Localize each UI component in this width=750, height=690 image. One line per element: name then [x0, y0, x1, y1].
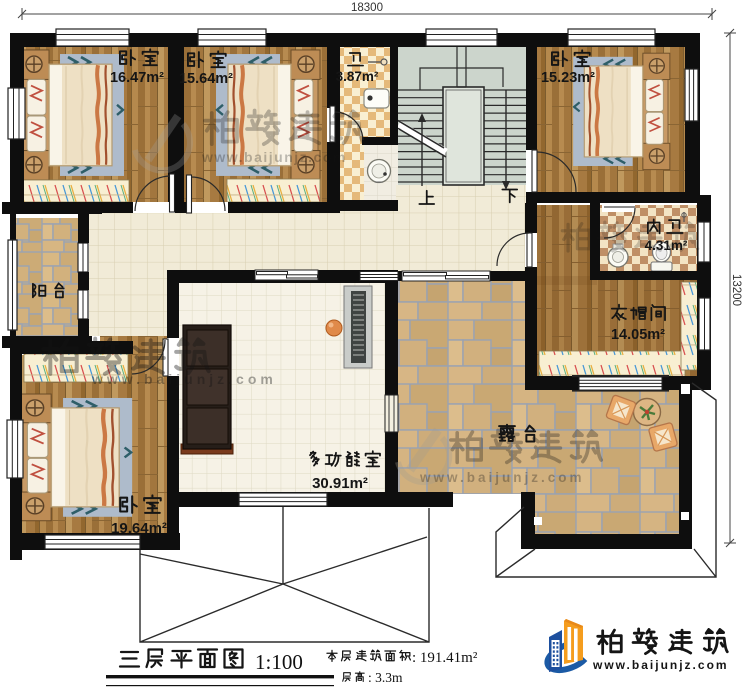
- svg-text:www.baijunjz.com: www.baijunjz.com: [419, 470, 585, 485]
- svg-text:15.64m²: 15.64m²: [179, 71, 233, 87]
- svg-text:1:100: 1:100: [255, 650, 303, 674]
- svg-text:18300: 18300: [351, 2, 383, 14]
- svg-text:www.baijunjz.com: www.baijunjz.com: [201, 149, 347, 165]
- svg-text:: 3.3m: : 3.3m: [368, 670, 403, 685]
- svg-text:15.23m²: 15.23m²: [541, 70, 595, 86]
- svg-text:13200: 13200: [730, 274, 742, 306]
- svg-text:www.baijunjz.com: www.baijunjz.com: [592, 658, 729, 672]
- svg-text:www.baijunjz.com: www.baijunjz.com: [91, 371, 277, 387]
- svg-text:30.91m²: 30.91m²: [312, 475, 368, 492]
- svg-text:14.05m²: 14.05m²: [611, 327, 665, 343]
- svg-text:: 191.41m²: : 191.41m²: [412, 650, 478, 666]
- svg-text:16.47m²: 16.47m²: [110, 70, 164, 86]
- svg-text:19.64m²: 19.64m²: [111, 520, 167, 537]
- svg-text:3.87m²: 3.87m²: [336, 69, 379, 84]
